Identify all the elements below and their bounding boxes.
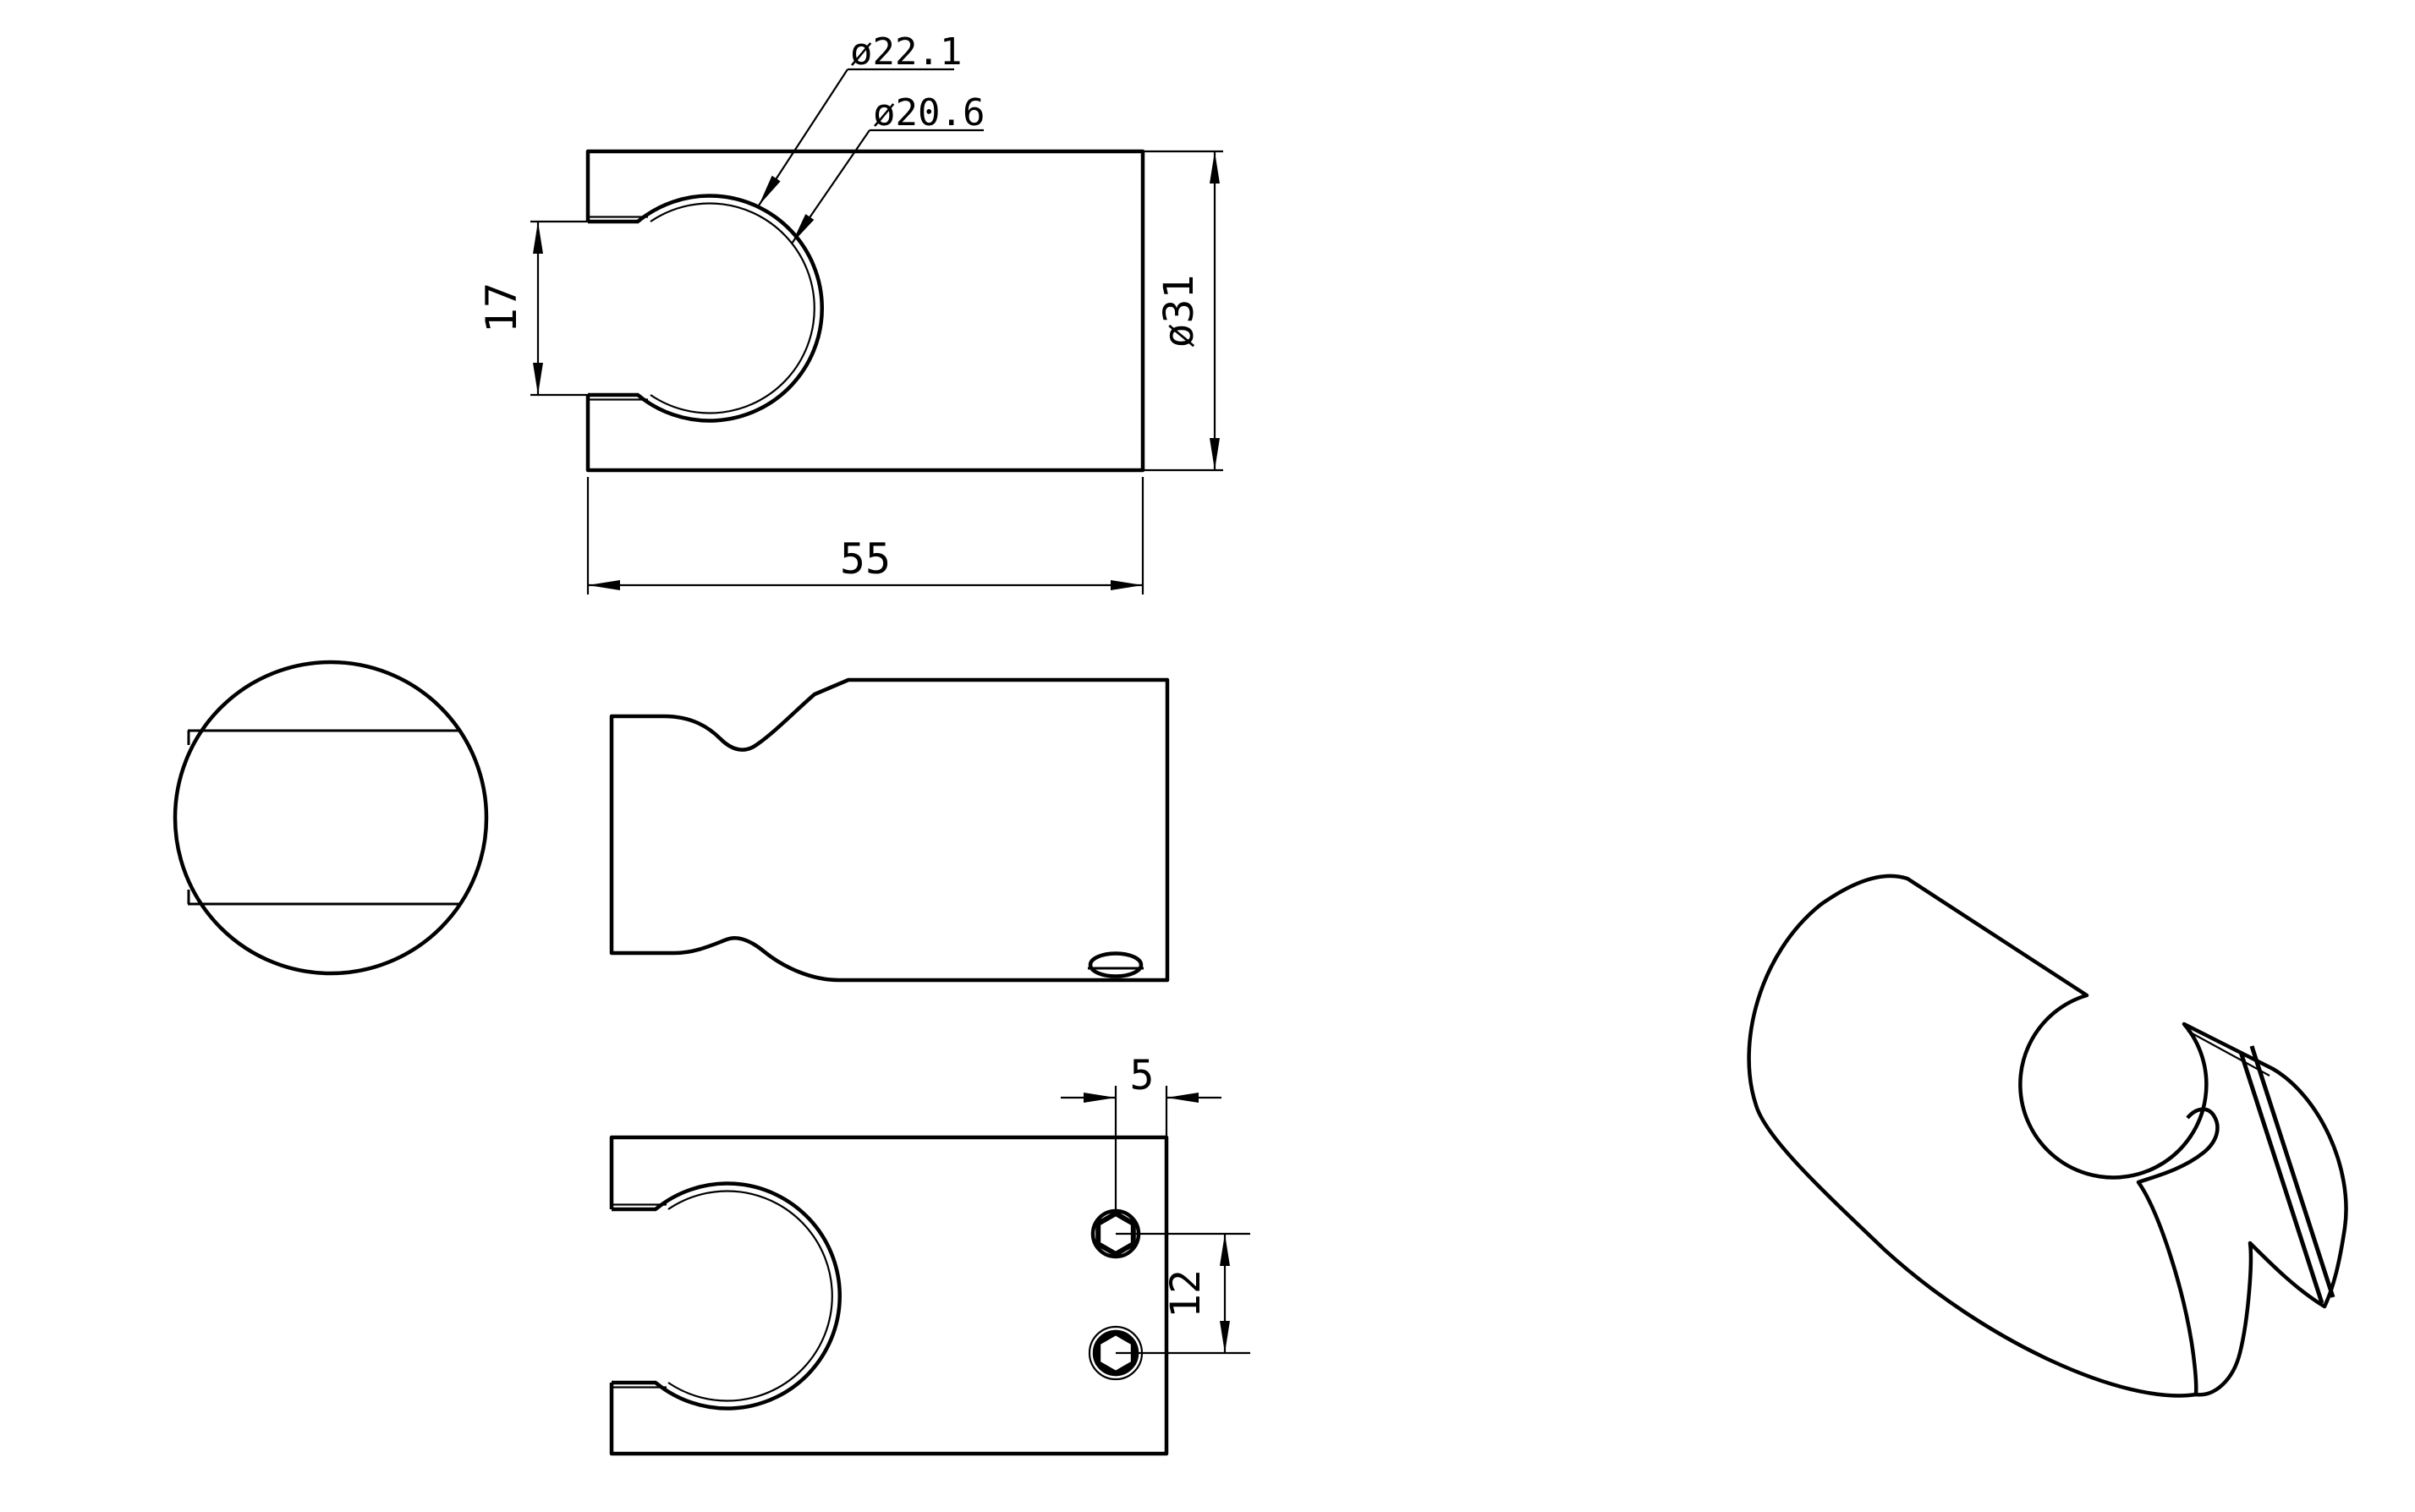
view-bottom: 5 12 bbox=[612, 1052, 1250, 1454]
dim-label-screw-spacing: 12 bbox=[1162, 1269, 1210, 1318]
side-screw-head bbox=[1090, 954, 1141, 977]
dim-label-body-length: 55 bbox=[840, 534, 891, 583]
drawing-sheet: 17 ø31 55 ø22.1 ø20.6 bbox=[0, 0, 2415, 1512]
bore-arc-outer bbox=[638, 196, 822, 421]
bottom-bore-arc-outer bbox=[656, 1184, 840, 1409]
arrow-up-icon bbox=[1220, 1234, 1230, 1266]
view-isometric bbox=[1749, 876, 2346, 1396]
front-outline bbox=[588, 151, 1143, 470]
dim-slot-width: 17 bbox=[477, 222, 591, 395]
dim-label-body-diameter: ø31 bbox=[1155, 275, 1203, 348]
arrow-left-icon bbox=[588, 580, 620, 590]
arrow-left-icon bbox=[1166, 1093, 1199, 1103]
end-outline-circle bbox=[175, 662, 486, 973]
side-outline bbox=[612, 680, 1167, 980]
view-front: 17 ø31 55 ø22.1 ø20.6 bbox=[477, 30, 1223, 594]
view-side bbox=[612, 680, 1167, 980]
leader-inner-diameter: ø20.6 bbox=[792, 91, 985, 244]
arrow-up-icon bbox=[533, 222, 543, 254]
iso-main-outline bbox=[1749, 876, 2346, 1396]
arrow-down-icon bbox=[533, 363, 543, 395]
arrow-down-icon bbox=[1210, 438, 1220, 470]
dim-label-slot-width: 17 bbox=[477, 282, 526, 333]
iso-end-face-band-1 bbox=[2241, 1052, 2322, 1303]
arrow-leader-icon bbox=[759, 176, 781, 205]
view-end-circle bbox=[175, 662, 486, 973]
dim-screw-edge-offset: 5 bbox=[1061, 1052, 1221, 1213]
arrow-right-icon bbox=[1084, 1093, 1116, 1103]
bottom-bore-arc-inner bbox=[668, 1192, 832, 1401]
arrow-down-icon bbox=[1220, 1321, 1230, 1353]
dim-label-screw-edge-offset: 5 bbox=[1130, 1052, 1155, 1099]
arrow-up-icon bbox=[1210, 151, 1220, 184]
bore-arc-inner bbox=[650, 203, 815, 413]
dim-body-length: 55 bbox=[588, 477, 1143, 594]
dim-body-diameter: ø31 bbox=[1144, 151, 1223, 470]
bottom-outline bbox=[612, 1137, 1166, 1454]
technical-drawing: 17 ø31 55 ø22.1 ø20.6 bbox=[0, 0, 2415, 1512]
dim-label-inner-diameter: ø20.6 bbox=[873, 91, 985, 134]
dim-label-outer-diameter: ø22.1 bbox=[850, 30, 962, 74]
arrow-leader-icon bbox=[792, 214, 814, 244]
arrow-right-icon bbox=[1111, 580, 1143, 590]
